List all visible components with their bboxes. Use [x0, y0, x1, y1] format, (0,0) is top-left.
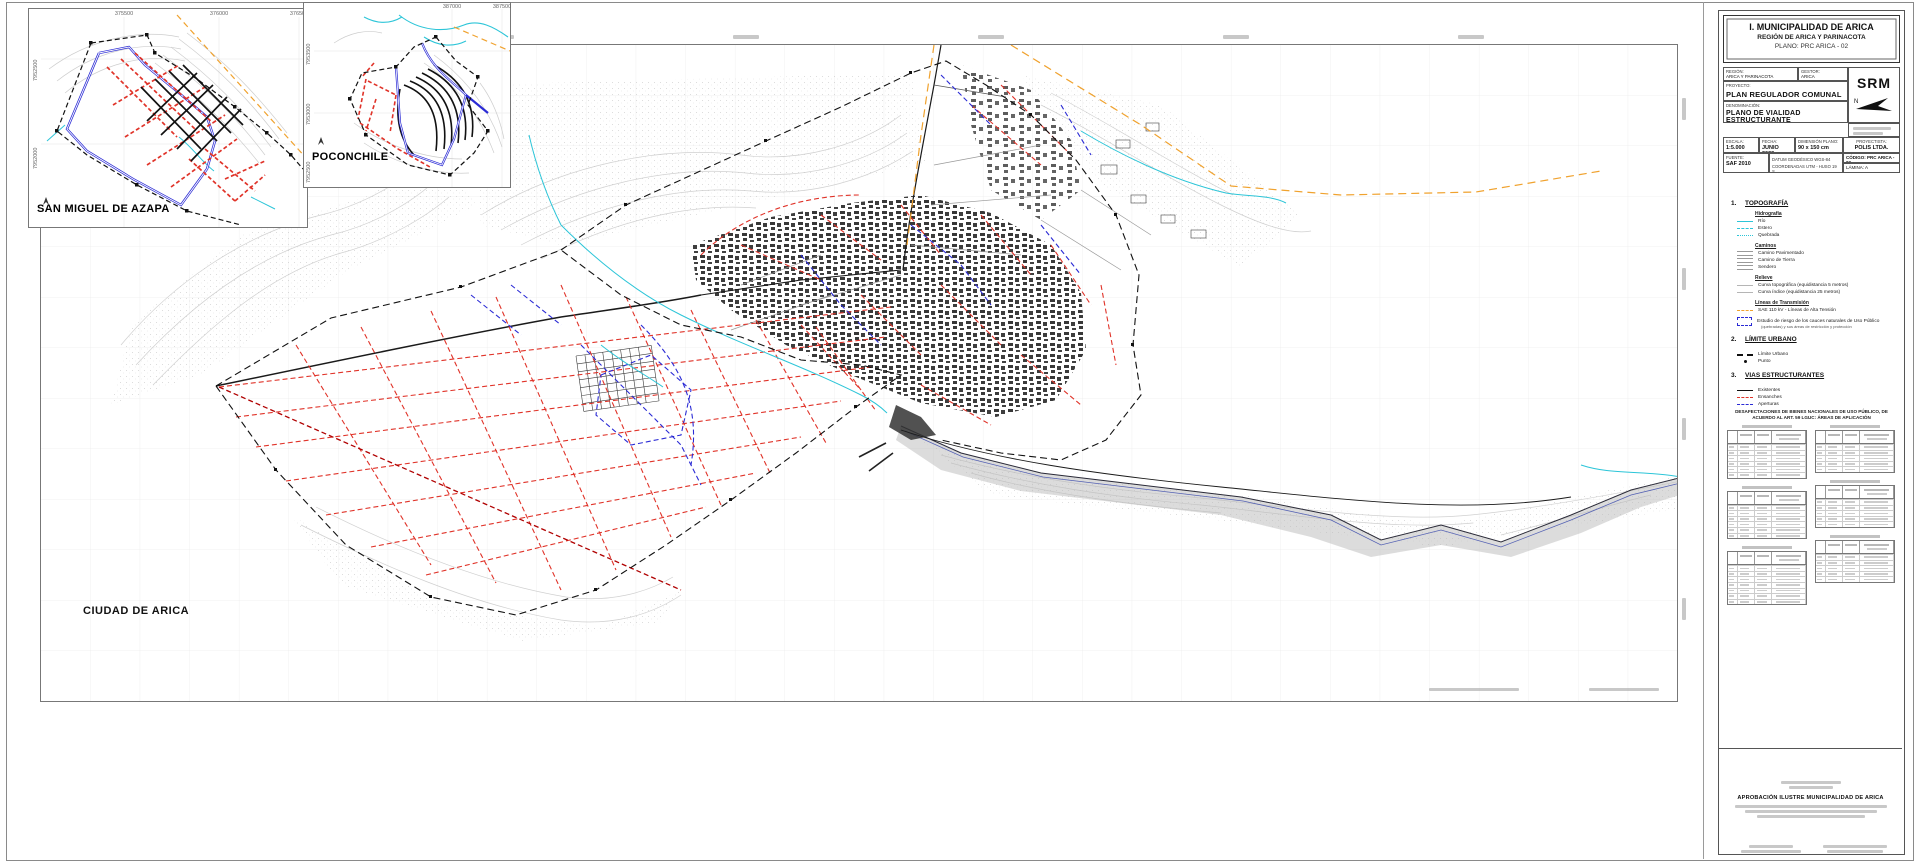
legend-item-label: Camino Pavimentado: [1758, 251, 1804, 256]
fecha-cell: FECHA:JUNIO 2022: [1759, 137, 1795, 153]
cyan-dash-swatch-icon: [1737, 228, 1753, 229]
desafectaciones-table: [1727, 546, 1807, 605]
legend-item: Camino de Tierra: [1737, 257, 1893, 264]
legend-item-label: Quebrada: [1758, 233, 1779, 238]
inset-poconchile: 387000 387500 7953500 7953000 7952500: [303, 2, 511, 188]
logo-subcell: [1848, 123, 1900, 137]
map-tick-label: [1682, 418, 1686, 440]
plan-sheet: CIUDAD DE ARICA 375500 376000 376500 795…: [0, 0, 1920, 864]
legend-item-label: Aperturas: [1758, 402, 1779, 407]
legend-item: Límite Urbano: [1737, 351, 1893, 358]
black-solid-swatch-icon: [1737, 390, 1753, 391]
desafectaciones-table: [1815, 480, 1895, 528]
datum-cell: DATUM GEODÉSICO WGS-84 COORDENADAS UTM -…: [1769, 153, 1843, 173]
blue-dash-swatch-icon: [1737, 404, 1753, 405]
legend-item: SAE 110 kV - Líneas de Alta Tensión: [1737, 307, 1893, 314]
legend-item-label: Sendero: [1758, 265, 1776, 270]
legend-item: Curva topográfica (equidistancia 5 metro…: [1737, 282, 1893, 289]
proyecto-cell: PROYECTO: PLAN REGULADOR COMUNAL DE ARIC…: [1723, 81, 1848, 101]
legend-item-label: SAE 110 kV - Líneas de Alta Tensión: [1758, 308, 1836, 313]
desafectaciones-table: [1815, 535, 1895, 583]
title-block-panel: I. MUNICIPALIDAD DE ARICA REGIÓN DE ARIC…: [1718, 10, 1905, 855]
escala-cell: ESCALA:1:5.000: [1723, 137, 1759, 153]
approval-block: APROBACIÓN ILUSTRE MUNICIPALIDAD DE ARIC…: [1719, 748, 1902, 855]
gray-thin-swatch-icon: [1737, 292, 1753, 293]
municipality-name: I. MUNICIPALIDAD DE ARICA: [1724, 22, 1899, 32]
region-cell: REGIÓN: ARICA Y PARINACOTA: [1723, 67, 1798, 81]
title-block-header: I. MUNICIPALIDAD DE ARICA REGIÓN DE ARIC…: [1723, 15, 1900, 63]
fuente-cell: FUENTE:SAF 2010: [1723, 153, 1769, 173]
plan-number: PLANO: PRC ARICA - 02: [1724, 43, 1899, 50]
map-tick-label: [733, 35, 759, 39]
legend-group-header: Líneas de Transmisión: [1755, 300, 1893, 306]
inset-title-poconchile: POCONCHILE: [312, 151, 388, 163]
gray-thin-swatch-icon: [1737, 285, 1753, 286]
tables-column-right: [1815, 425, 1895, 590]
map-tick-label: [1223, 35, 1249, 39]
blue-rect-swatch-icon: [1737, 317, 1752, 326]
map-tick-label: [1682, 598, 1686, 620]
red-dash-swatch-icon: [1737, 397, 1753, 398]
north-arrow-icon: [318, 137, 324, 145]
lamina-cell: LÁMINA: A: [1843, 163, 1900, 173]
legend-section-title: 3.VIAS ESTRUCTURANTES: [1731, 372, 1893, 379]
legend-item-label: Límite Urbano: [1758, 352, 1788, 357]
logo-cell: SRM N: [1848, 67, 1900, 123]
approval-title: APROBACIÓN ILUSTRE MUNICIPALIDAD DE ARIC…: [1719, 795, 1902, 801]
legend-item: Ensanches: [1737, 394, 1893, 401]
legend-section-title: 1.TOPOGRAFÍA: [1731, 200, 1893, 207]
legend-section-title: 2.LÍMITE URBANO: [1731, 336, 1893, 343]
denominacion-cell: DENOMINACIÓN: PLANO DE VIALIDAD ESTRUCTU…: [1723, 101, 1848, 123]
road-swatch-icon: [1737, 251, 1753, 256]
orange-dash-swatch-icon: [1737, 310, 1753, 311]
inset-title-san-miguel: SAN MIGUEL DE AZAPA: [37, 203, 170, 215]
legend-group-header: Hidrografía: [1755, 211, 1893, 217]
legend-item: Sendero: [1737, 264, 1893, 271]
legend-item: Río: [1737, 218, 1893, 225]
legend-item-label: Curva índice (equidistancia 25 metros): [1758, 290, 1840, 295]
dimension-cell: DIMENSIÓN PLANO:90 x 150 cm: [1795, 137, 1843, 153]
road-swatch-icon: [1737, 258, 1753, 263]
frame-footer-stamp: [1429, 688, 1519, 691]
region-name: REGIÓN DE ARICA Y PARINACOTA: [1724, 34, 1899, 41]
legend-item-label: Punto: [1758, 359, 1771, 364]
tables-column-left: [1727, 425, 1807, 612]
legend-item: Estero: [1737, 225, 1893, 232]
legend-item-label: Ensanches: [1758, 395, 1782, 400]
desafectaciones-table: [1727, 425, 1807, 479]
inset-san-miguel-drawing: [29, 9, 307, 227]
map-label-ciudad-de-arica: CIUDAD DE ARICA: [83, 605, 189, 617]
codigo-cell: CÓDIGO: PRC ARICA - 02: [1843, 153, 1900, 163]
frame-footer-stamp: [1589, 688, 1659, 691]
legend-item-label: Curva topográfica (equidistancia 5 metro…: [1758, 283, 1848, 288]
cyan-solid-swatch-icon: [1737, 221, 1753, 222]
map-tick-label: [978, 35, 1004, 39]
srm-logo: SRM: [1851, 75, 1897, 91]
legend-item: Quebrada: [1737, 232, 1893, 239]
legend-item: Aperturas: [1737, 401, 1893, 408]
legend-item: Punto: [1737, 358, 1893, 365]
dot-swatch-icon: [1744, 360, 1747, 363]
legend-item-label: Estero: [1758, 226, 1772, 231]
legend-group-header: Relieve: [1755, 275, 1893, 281]
legend-item: Camino Pavimentado: [1737, 250, 1893, 257]
fold-line: [1703, 2, 1704, 859]
desafectaciones-table: [1727, 486, 1807, 540]
cyan-dot-swatch-icon: [1737, 235, 1753, 236]
legend-item-subtext: (quebradas) y sus áreas de restricción y…: [1761, 324, 1893, 329]
legend-group-header: Caminos: [1755, 243, 1893, 249]
tables-title: DESAFECTACIONES DE BIENES NACIONALES DE …: [1727, 409, 1896, 421]
map-tick-label: [1682, 268, 1686, 290]
legend-item-label: Existentes: [1758, 388, 1780, 393]
north-arrow-icon: N: [1852, 95, 1896, 113]
proyectista-cell: PROYECTISTA:POLIS LTDA.: [1843, 137, 1900, 153]
limit-swatch-icon: [1737, 354, 1753, 356]
road-swatch-icon: [1737, 265, 1753, 270]
legend-item-label: Río: [1758, 219, 1765, 224]
legend: 1.TOPOGRAFÍAHidrografíaRíoEsteroQuebrada…: [1731, 193, 1893, 408]
desafectaciones-table: [1815, 425, 1895, 473]
map-tick-label: [1682, 98, 1686, 120]
map-tick-label: [1458, 35, 1484, 39]
svg-text:N: N: [1854, 99, 1858, 105]
legend-item-label: Camino de Tierra: [1758, 258, 1795, 263]
legend-item: Curva índice (equidistancia 25 metros): [1737, 289, 1893, 296]
inset-san-miguel: 375500 376000 376500 7952500 7952000: [28, 8, 308, 228]
legend-item: Existentes: [1737, 387, 1893, 394]
gestor-cell: GESTOR: ARICA: [1798, 67, 1848, 81]
